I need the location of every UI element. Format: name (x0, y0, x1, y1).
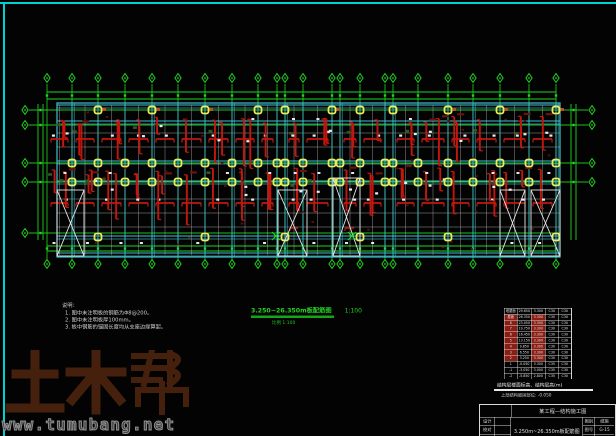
note-line-2: 2. 图中未注明板厚100mm。 (62, 317, 197, 324)
watermark-url: www.tumubang.net (2, 415, 175, 434)
floor-table-cell: C30 (559, 373, 572, 379)
title-block: 某工程—结构施工图 设计 校对 审核 3.250m~26.350m板配筋图 图别… (479, 404, 616, 436)
caption-underline (494, 389, 593, 391)
note-line-3: 3. 板中钢筋的锚固长度均从支座边缘算起。 (62, 324, 197, 331)
titleblock-value-sheet-no: G-15 (595, 426, 614, 435)
floor-table-cell: -2 (505, 373, 518, 379)
titleblock-label-sheet-no: 图号 (583, 426, 595, 435)
drawing-title-text: 3.250~26.350m板配筋图 (251, 307, 332, 315)
drawing-scale-label: 1:100 (345, 307, 362, 314)
floor-elevation-table: 塔屋面29.6503.300C30C30屋面26.3503.300C30C308… (504, 308, 572, 379)
title-underline-bar (251, 316, 334, 319)
drawing-frame-top (0, 2, 616, 4)
titleblock-label-design: 设计 (480, 418, 495, 427)
drawing-title: 3.250~26.350m板配筋图1:100 比例 1:100 (251, 305, 371, 329)
titleblock-value-sheet-type: 结施 (595, 418, 614, 427)
watermark-brand: 土木帮 (2, 350, 202, 420)
note-line-1: 1. 图中未注明板的钢筋为Φ8@200。 (62, 310, 197, 317)
notes-heading: 说明： (62, 302, 197, 309)
floor-table-cell: 2.800 (532, 373, 546, 379)
title-block-logo-cell (480, 405, 512, 417)
cad-drawing-canvas: 说明： 1. 图中未注明板的钢筋为Φ8@200。 2. 图中未注明板厚100mm… (0, 0, 616, 436)
titleblock-signature-cells (495, 418, 511, 436)
floor-table-grid: 塔屋面29.6503.300C30C30屋面26.3503.300C30C308… (504, 308, 572, 379)
titleblock-label-check: 校对 (480, 426, 495, 435)
titleblock-label-sheet-type: 图别 (583, 418, 595, 427)
floor-table-cell: -5.850 (518, 373, 532, 379)
drawing-subtitle: 比例 1:100 (272, 319, 371, 326)
notes-block: 说明： 1. 图中未注明板的钢筋为Φ8@200。 2. 图中未注明板厚100mm… (62, 302, 197, 338)
project-name: 某工程—结构施工图 (512, 405, 615, 417)
floor-table-caption: 结构层楼面标高、结构层高(m) (497, 381, 597, 389)
floor-table-cell: C35 (546, 373, 559, 379)
drawing-name-cell: 3.250m~26.350m板配筋图 (511, 418, 583, 436)
floor-table-footnote: 上部结构嵌固部位: -0.050 (501, 392, 596, 399)
